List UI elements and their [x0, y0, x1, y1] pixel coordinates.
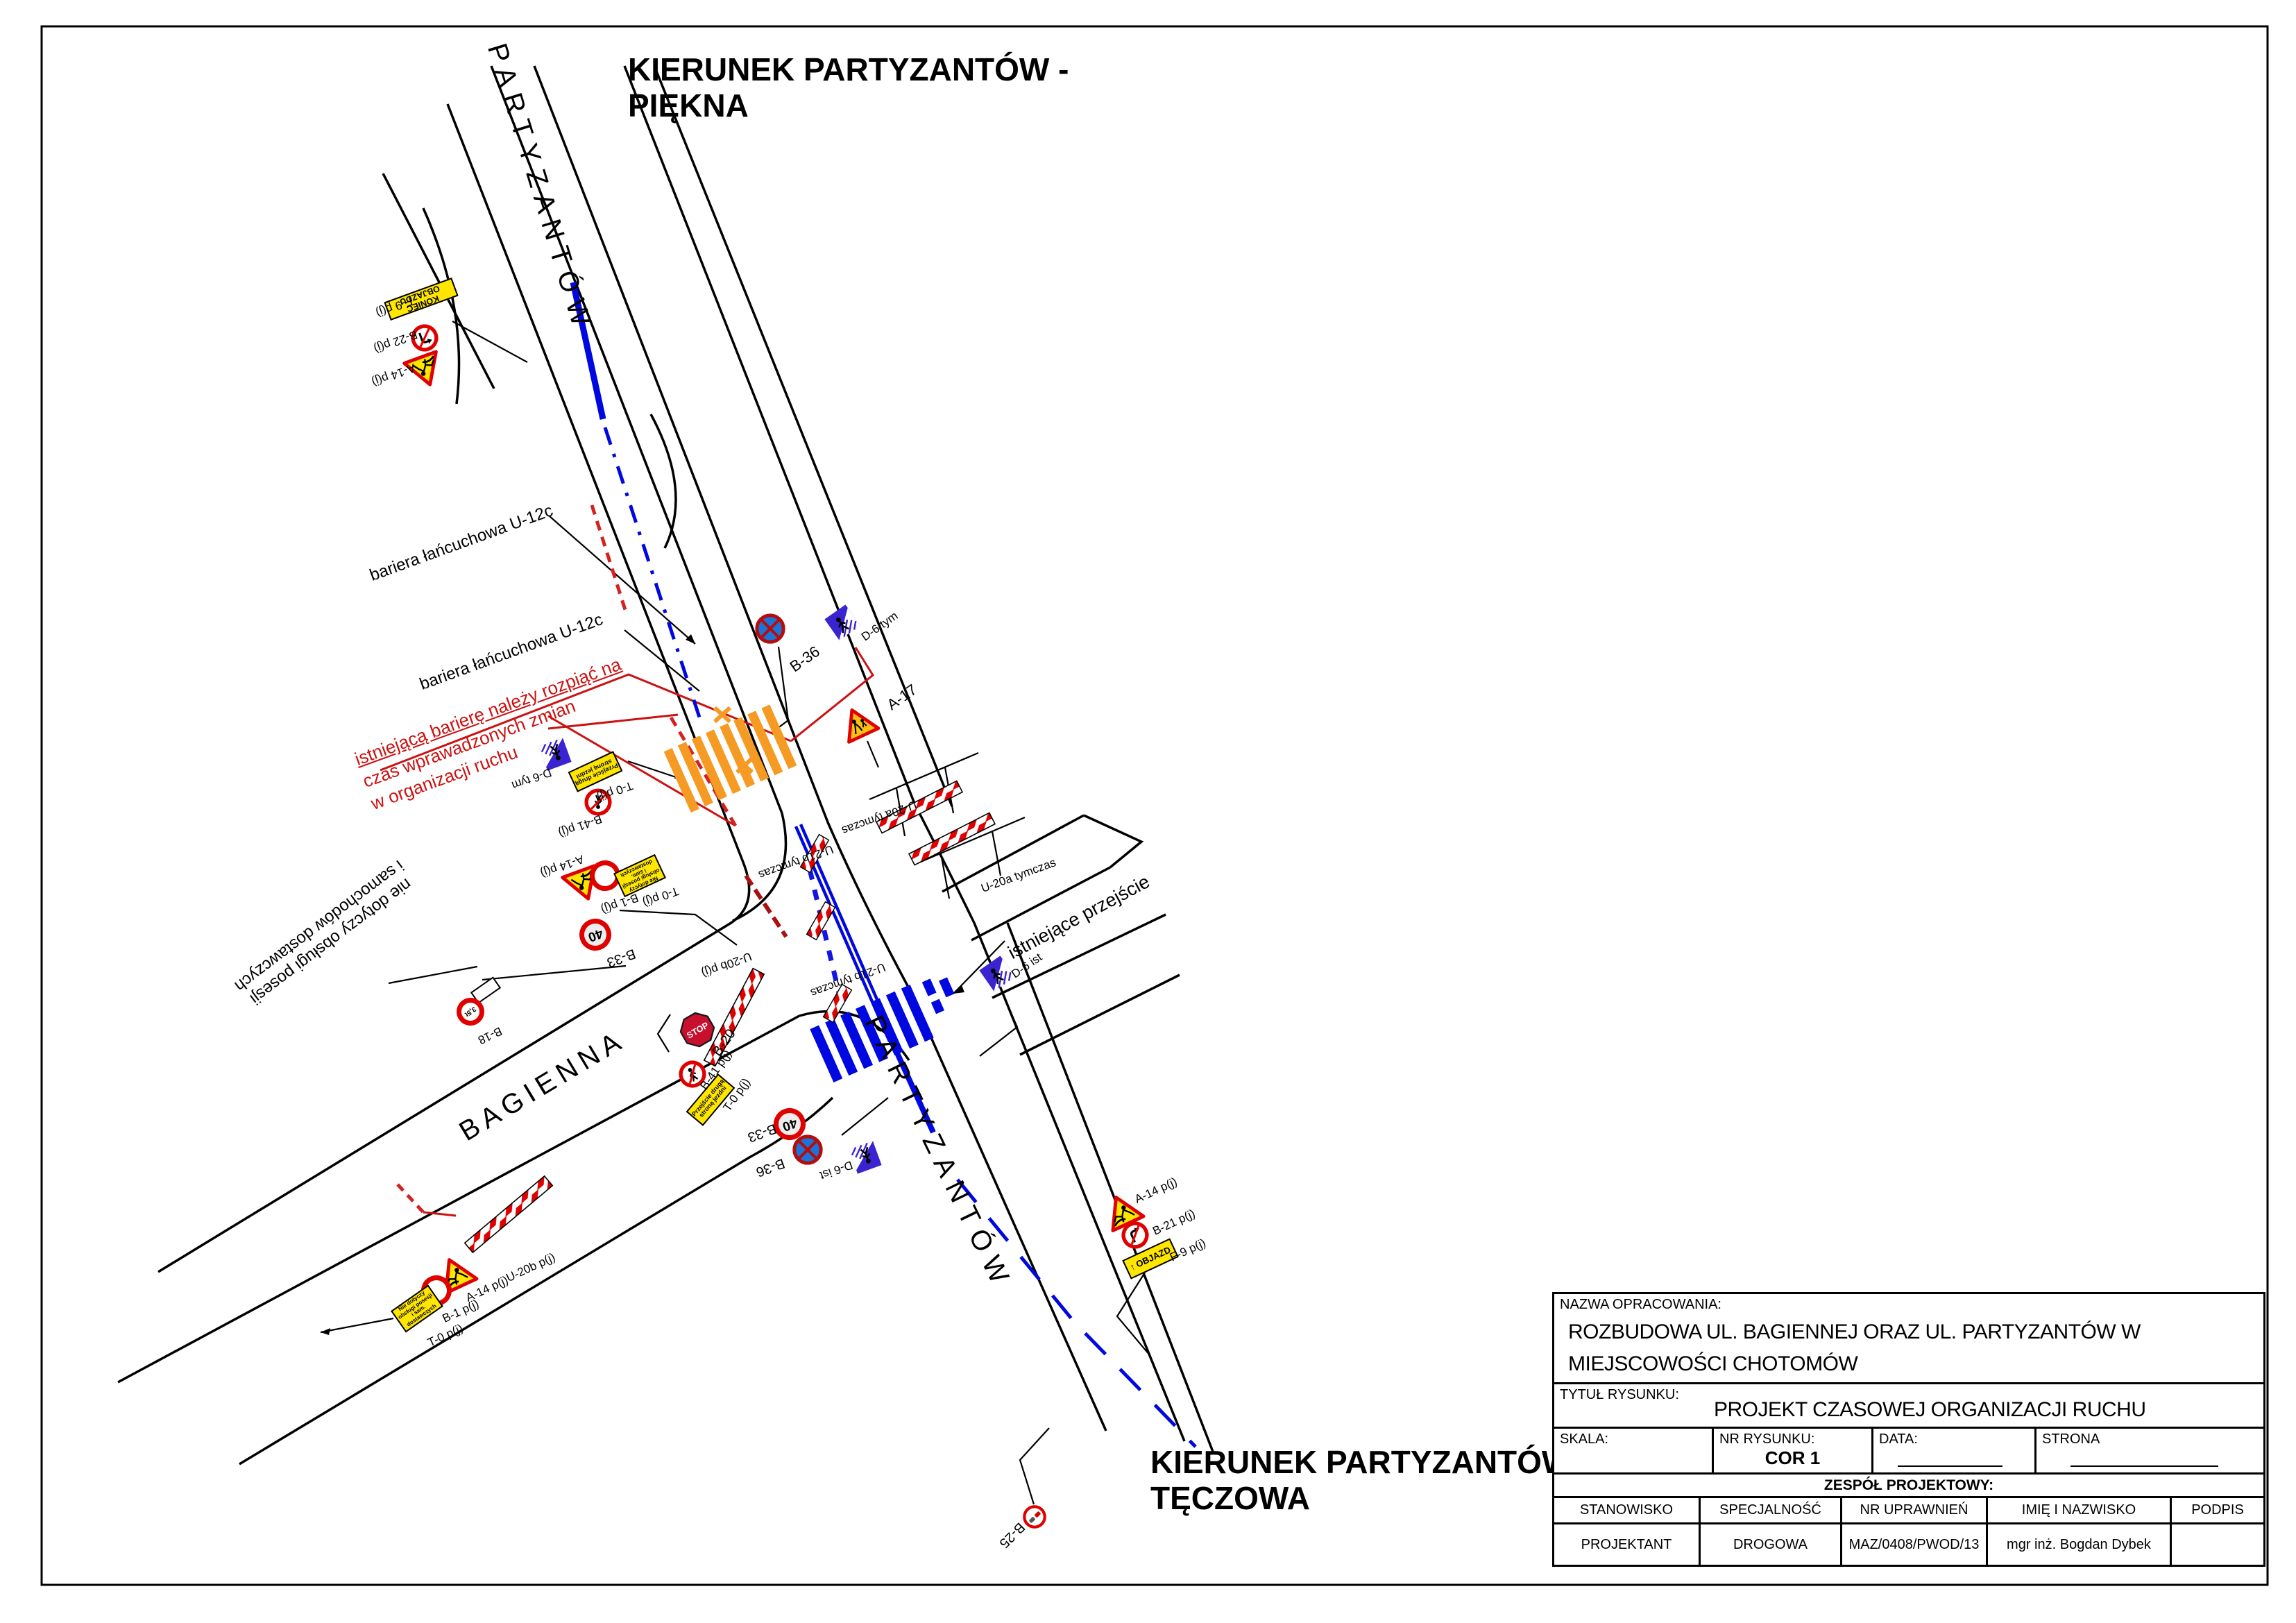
row-imie: mgr inż. Bogdan Dybek	[1988, 1524, 2172, 1565]
heading-bottom-line1: KIERUNEK PARTYZANTÓW -	[1150, 1445, 1591, 1481]
sign-b36-no-stopping-2	[790, 1132, 825, 1167]
col-stanowisko: STANOWISKO	[1554, 1498, 1701, 1522]
skala-cell: SKALA:	[1554, 1429, 1714, 1472]
data-cell: DATA:	[1873, 1429, 2036, 1472]
col-uprawnienia: NR UPRAWNIEŃ	[1842, 1498, 1988, 1522]
col-imie: IMIĘ I NAZWISKO	[1988, 1498, 2172, 1522]
row-stanowisko: PROJEKTANT	[1554, 1524, 1701, 1565]
data-blank-line	[1898, 1465, 2002, 1467]
heading-direction-teczowa: KIERUNEK PARTYZANTÓW - TĘCZOWA	[1150, 1445, 1591, 1516]
zespol-label: ZESPÓŁ PROJEKTOWY:	[1824, 1477, 1993, 1494]
data-label: DATA:	[1879, 1431, 1918, 1447]
team-header-row: STANOWISKO SPECJALNOŚĆ NR UPRAWNIEŃ IMIĘ…	[1554, 1498, 2263, 1524]
heading-top-line2: PIĘKNA	[628, 88, 1069, 124]
row-podpis	[2172, 1524, 2263, 1565]
heading-bottom-line2: TĘCZOWA	[1150, 1481, 1591, 1517]
strona-label: STRONA	[2042, 1431, 2100, 1447]
road-edges	[118, 66, 1213, 1464]
heading-top-line1: KIERUNEK PARTYZANTÓW -	[628, 52, 1069, 88]
title-block-tytul-row: TYTUŁ RYSUNKU: PROJEKT CZASOWEJ ORGANIZA…	[1554, 1384, 2263, 1429]
b33-1-value: 40	[586, 925, 604, 944]
title-block: NAZWA OPRACOWANIA: ROZBUDOWA UL. BAGIENN…	[1552, 1292, 2265, 1567]
sign-b36-no-stopping-1	[753, 611, 788, 646]
nr-label: NR RYSUNKU:	[1719, 1431, 1814, 1447]
traffic-plan-sheet: KIERUNEK PARTYZANTÓW - PIĘKNA KIERUNEK P…	[0, 0, 2296, 1623]
tytul-label: TYTUŁ RYSUNKU:	[1560, 1387, 1679, 1403]
strona-blank-line	[2070, 1465, 2218, 1467]
nazwa-line2: MIEJSCOWOŚCI CHOTOMÓW	[1568, 1352, 1857, 1376]
strona-cell: STRONA	[2036, 1429, 2263, 1472]
heading-direction-piekna: KIERUNEK PARTYZANTÓW - PIĘKNA	[628, 52, 1069, 124]
skala-label: SKALA:	[1560, 1431, 1608, 1447]
tytul-value: PROJEKT CZASOWEJ ORGANIZACJI RUCHU	[1714, 1398, 2146, 1422]
title-block-nazwa-row: NAZWA OPRACOWANIA: ROZBUDOWA UL. BAGIENN…	[1554, 1294, 2263, 1384]
row-uprawnienia: MAZ/0408/PWOD/13	[1842, 1524, 1988, 1565]
b33-2-value: 40	[780, 1114, 799, 1134]
nazwa-label: NAZWA OPRACOWANIA:	[1560, 1297, 1721, 1313]
nr-value: COR 1	[1765, 1447, 1820, 1469]
row-specjalnosc: DROGOWA	[1701, 1524, 1842, 1565]
nr-rysunku-cell: NR RYSUNKU: COR 1	[1714, 1429, 1873, 1472]
team-data-row: PROJEKTANT DROGOWA MAZ/0408/PWOD/13 mgr …	[1554, 1524, 2263, 1565]
nazwa-line1: ROZBUDOWA UL. BAGIENNEJ ORAZ UL. PARTYZA…	[1568, 1320, 2141, 1344]
col-specjalnosc: SPECJALNOŚĆ	[1701, 1498, 1842, 1522]
b18-value: 3,5t	[464, 1005, 477, 1019]
title-block-meta-row: SKALA: NR RYSUNKU: COR 1 DATA: STRONA	[1554, 1429, 2263, 1475]
col-podpis: PODPIS	[2172, 1498, 2263, 1522]
zespol-row: ZESPÓŁ PROJEKTOWY:	[1554, 1475, 2263, 1498]
blue-markings	[573, 282, 1196, 1447]
